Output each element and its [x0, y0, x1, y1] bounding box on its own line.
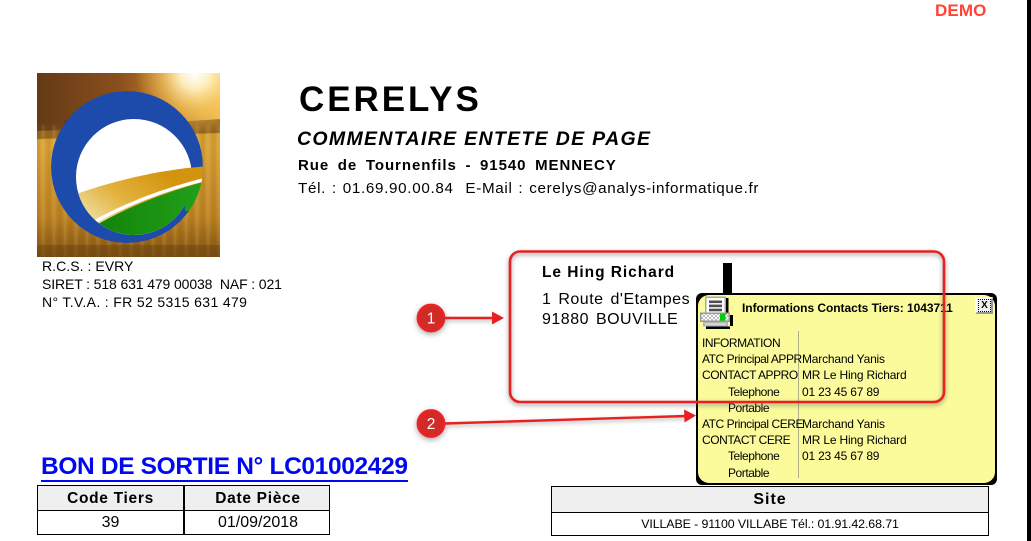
- svg-text:1: 1: [427, 311, 436, 328]
- svg-text:2: 2: [427, 416, 436, 433]
